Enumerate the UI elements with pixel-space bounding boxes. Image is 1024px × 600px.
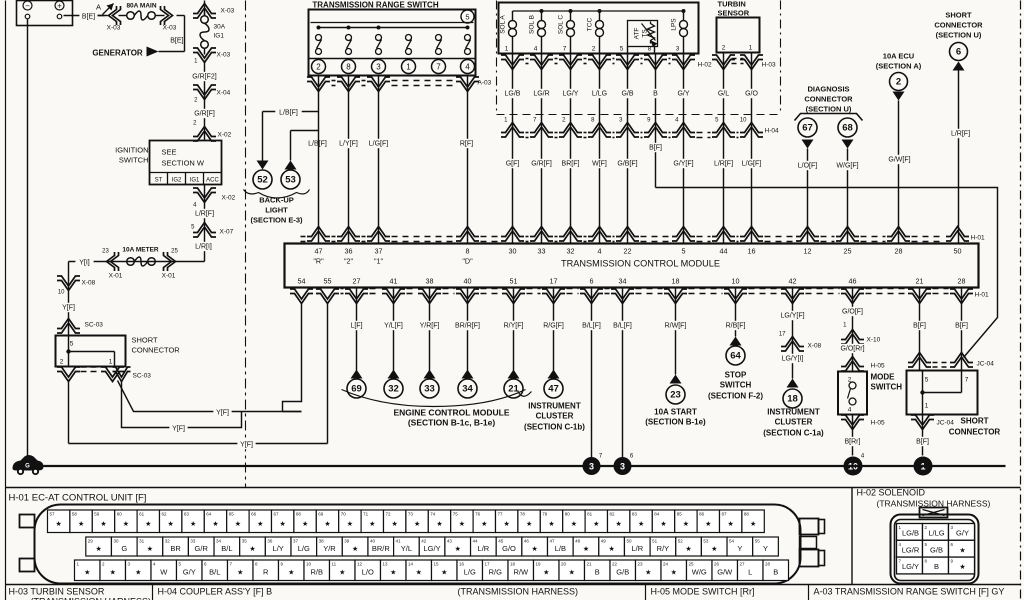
svg-text:Y: Y <box>737 544 742 553</box>
svg-text:LG/Y: LG/Y <box>563 91 579 98</box>
svg-text:GENERATOR: GENERATOR <box>92 49 143 58</box>
svg-text:H-04: H-04 <box>765 128 779 135</box>
svg-text:3: 3 <box>620 462 625 472</box>
svg-text:54: 54 <box>729 539 735 544</box>
svg-text:★: ★ <box>685 545 691 553</box>
svg-text:INSTRUMENT: INSTRUMENT <box>767 408 820 417</box>
svg-text:LIGHT: LIGHT <box>265 206 288 215</box>
svg-text:76: 76 <box>475 512 481 517</box>
svg-text:L/Y[F]: L/Y[F] <box>339 141 358 148</box>
svg-text:G: G <box>121 544 127 553</box>
svg-text:ACC: ACC <box>206 178 219 184</box>
svg-text:★: ★ <box>526 520 532 528</box>
svg-text:R/G: R/G <box>489 568 503 577</box>
svg-text:X-01: X-01 <box>162 273 176 280</box>
svg-text:IG1: IG1 <box>214 33 225 40</box>
svg-text:61: 61 <box>139 512 145 517</box>
svg-text:★: ★ <box>705 520 711 528</box>
svg-text:W: W <box>160 568 168 577</box>
svg-text:28: 28 <box>765 562 771 567</box>
svg-text:★: ★ <box>237 569 243 577</box>
svg-text:43: 43 <box>447 539 453 544</box>
svg-text:★: ★ <box>280 520 286 528</box>
svg-text:★: ★ <box>569 569 575 577</box>
svg-text:38: 38 <box>426 277 434 286</box>
svg-text:G[F]: G[F] <box>506 161 520 168</box>
svg-text:"2": "2" <box>344 257 354 266</box>
svg-text:25: 25 <box>844 247 852 256</box>
svg-text:18: 18 <box>510 562 516 567</box>
svg-text:INSTRUMENT: INSTRUMENT <box>528 402 581 411</box>
svg-text:★: ★ <box>543 569 549 577</box>
svg-text:44: 44 <box>473 539 479 544</box>
svg-text:★: ★ <box>416 569 422 577</box>
svg-text:33: 33 <box>538 247 546 256</box>
svg-text:X-10: X-10 <box>867 337 881 344</box>
svg-text:40: 40 <box>464 277 472 286</box>
svg-text:SHORT: SHORT <box>945 11 972 20</box>
svg-text:L/R: L/R <box>478 544 490 553</box>
svg-text:Y[F]: Y[F] <box>216 410 229 417</box>
svg-text:L/B: L/B <box>555 544 566 553</box>
svg-text:★: ★ <box>145 520 151 528</box>
svg-text:1: 1 <box>925 403 929 410</box>
svg-text:35: 35 <box>242 539 248 544</box>
svg-text:10: 10 <box>740 118 747 124</box>
svg-text:31: 31 <box>139 539 145 544</box>
svg-text:LG/Y[I]: LG/Y[I] <box>782 356 804 363</box>
svg-text:19: 19 <box>536 562 542 567</box>
svg-text:★: ★ <box>168 520 174 528</box>
svg-text:"R": "R" <box>313 257 324 266</box>
svg-text:★: ★ <box>638 520 644 528</box>
svg-text:G/R[F2]: G/R[F2] <box>192 74 217 81</box>
svg-text:Y[F]: Y[F] <box>240 442 253 449</box>
svg-text:78: 78 <box>520 512 526 517</box>
svg-text:82: 82 <box>610 512 616 517</box>
svg-text:★: ★ <box>369 520 375 528</box>
svg-text:3: 3 <box>589 462 594 472</box>
svg-text:17: 17 <box>779 332 786 338</box>
svg-text:W/G: W/G <box>692 568 707 577</box>
svg-text:B[Rr]: B[Rr] <box>845 439 861 446</box>
svg-text:H-05: H-05 <box>871 363 885 370</box>
svg-text:B[F]: B[F] <box>916 439 929 446</box>
svg-text:IG1: IG1 <box>190 178 200 184</box>
svg-text:(SECTION C-1b): (SECTION C-1b) <box>524 423 585 432</box>
svg-text:★: ★ <box>728 520 734 528</box>
svg-text:R/B[F]: R/B[F] <box>726 323 746 330</box>
svg-text:40: 40 <box>370 539 376 544</box>
svg-text:★: ★ <box>78 520 84 528</box>
svg-text:★: ★ <box>532 545 538 553</box>
svg-text:★: ★ <box>481 520 487 528</box>
svg-text:4: 4 <box>848 407 852 414</box>
svg-text:30A: 30A <box>214 24 226 31</box>
svg-text:10: 10 <box>58 290 65 296</box>
svg-text:★: ★ <box>671 569 677 577</box>
svg-text:(SECTION F-2): (SECTION F-2) <box>708 392 763 401</box>
svg-text:LPS: LPS <box>671 18 678 31</box>
svg-text:84: 84 <box>654 512 660 517</box>
svg-text:G/Y: G/Y <box>183 568 196 577</box>
svg-text:SC-03: SC-03 <box>85 322 104 329</box>
svg-text:H-03: H-03 <box>762 62 776 69</box>
svg-text:34: 34 <box>619 277 627 286</box>
svg-text:36: 36 <box>267 539 273 544</box>
svg-text:G/R[F]: G/R[F] <box>531 161 552 168</box>
svg-text:L/R[F]: L/R[F] <box>951 131 970 138</box>
svg-text:(SECTION U): (SECTION U) <box>936 31 982 40</box>
svg-text:(SECTION C-1a): (SECTION C-1a) <box>763 429 824 438</box>
svg-text:H-02 SOLENOID: H-02 SOLENOID <box>857 488 926 498</box>
svg-text:TURBIN: TURBIN <box>718 0 746 9</box>
svg-text:★: ★ <box>390 569 396 577</box>
svg-text:4: 4 <box>534 46 538 53</box>
svg-text:R/Y: R/Y <box>657 544 670 553</box>
svg-text:50: 50 <box>626 539 632 544</box>
svg-text:22: 22 <box>624 247 632 256</box>
svg-text:X-07: X-07 <box>220 229 234 236</box>
svg-text:A-03: A-03 <box>478 80 492 87</box>
svg-text:★: ★ <box>660 520 666 528</box>
svg-text:(SECTION B-1e): (SECTION B-1e) <box>645 418 706 427</box>
svg-text:L/LG: L/LG <box>928 529 944 538</box>
svg-text:44: 44 <box>720 247 728 256</box>
svg-text:R/G[F]: R/G[F] <box>543 323 564 330</box>
svg-text:L/LG: L/LG <box>592 91 607 98</box>
svg-text:L/G: L/G <box>464 568 476 577</box>
svg-text:★: ★ <box>593 520 599 528</box>
svg-text:"1": "1" <box>374 257 384 266</box>
svg-text:G/Y: G/Y <box>956 529 969 538</box>
svg-text:SOL B: SOL B <box>529 15 536 34</box>
svg-text:81: 81 <box>587 512 593 517</box>
svg-text:L/Y: L/Y <box>273 544 284 553</box>
svg-text:BR[F]: BR[F] <box>562 161 580 168</box>
svg-text:★: ★ <box>347 520 353 528</box>
svg-text:74: 74 <box>430 512 436 517</box>
svg-text:B/L[F]: B/L[F] <box>613 323 632 330</box>
svg-text:LG/B: LG/B <box>902 529 919 538</box>
svg-text:58: 58 <box>72 512 78 517</box>
svg-text:★: ★ <box>135 569 141 577</box>
svg-text:LG/Y: LG/Y <box>424 544 441 553</box>
svg-text:B/L: B/L <box>209 568 220 577</box>
svg-text:IG2: IG2 <box>172 178 182 184</box>
svg-text:62: 62 <box>162 512 168 517</box>
svg-text:5: 5 <box>70 341 74 348</box>
svg-text:75: 75 <box>453 512 459 517</box>
svg-text:R/Y[F]: R/Y[F] <box>504 323 524 330</box>
svg-text:7: 7 <box>436 63 441 72</box>
svg-text:33: 33 <box>190 539 196 544</box>
svg-text:X-03: X-03 <box>221 8 235 15</box>
svg-text:(SECTION A): (SECTION A) <box>876 62 922 71</box>
svg-text:★: ★ <box>616 520 622 528</box>
svg-text:51: 51 <box>510 277 518 286</box>
svg-text:1: 1 <box>505 46 509 53</box>
svg-text:−: − <box>25 2 30 11</box>
svg-text:SHORT: SHORT <box>961 417 989 426</box>
svg-text:8: 8 <box>466 247 470 256</box>
svg-text:SHORT: SHORT <box>132 336 159 345</box>
svg-text:SWITCH: SWITCH <box>720 381 752 390</box>
svg-text:66: 66 <box>251 512 257 517</box>
svg-text:21: 21 <box>587 562 593 567</box>
svg-text:H-04 COUPLER ASS'Y [F] B: H-04 COUPLER ASS'Y [F] B <box>158 587 273 597</box>
svg-text:4: 4 <box>465 63 470 72</box>
svg-text:★: ★ <box>100 520 106 528</box>
svg-text:48: 48 <box>575 539 581 544</box>
svg-text:24: 24 <box>663 562 669 567</box>
svg-text:47: 47 <box>548 384 559 395</box>
svg-text:69: 69 <box>318 512 324 517</box>
svg-text:B[F]: B[F] <box>649 145 662 152</box>
svg-text:(SECTION E-3): (SECTION E-3) <box>250 216 303 225</box>
svg-text:25: 25 <box>171 249 178 255</box>
svg-text:★: ★ <box>212 520 218 528</box>
svg-text:65: 65 <box>229 512 235 517</box>
svg-text:B: B <box>773 568 778 577</box>
svg-text:SWITCH: SWITCH <box>119 156 149 165</box>
svg-text:41: 41 <box>390 277 398 286</box>
svg-text:★: ★ <box>959 546 965 554</box>
svg-text:67: 67 <box>274 512 280 517</box>
svg-text:G/O[F]: G/O[F] <box>842 309 863 316</box>
svg-text:B/L[F]: B/L[F] <box>582 323 601 330</box>
svg-text:ST: ST <box>155 178 163 184</box>
svg-text:H-05 MODE SWITCH [Rr]: H-05 MODE SWITCH [Rr] <box>651 587 755 597</box>
svg-text:49: 49 <box>601 539 607 544</box>
svg-text:73: 73 <box>408 512 414 517</box>
svg-text:★: ★ <box>257 520 263 528</box>
svg-text:2: 2 <box>896 77 901 88</box>
svg-text:★: ★ <box>750 520 756 528</box>
svg-text:34: 34 <box>462 384 473 395</box>
svg-text:70: 70 <box>341 512 347 517</box>
svg-text:L: L <box>748 568 752 577</box>
svg-text:3: 3 <box>676 46 680 53</box>
svg-text:17: 17 <box>550 277 558 286</box>
svg-text:LG/R: LG/R <box>533 91 549 98</box>
svg-text:G/W[F]: G/W[F] <box>888 157 910 164</box>
svg-text:26: 26 <box>714 562 720 567</box>
svg-text:R/W[F]: R/W[F] <box>665 323 687 330</box>
svg-text:STOP: STOP <box>725 371 747 380</box>
svg-text:17: 17 <box>485 562 491 567</box>
svg-text:★: ★ <box>147 545 153 553</box>
svg-text:50: 50 <box>954 247 962 256</box>
svg-text:ENGINE CONTROL MODULE: ENGINE CONTROL MODULE <box>393 408 509 418</box>
svg-text:47: 47 <box>550 539 556 544</box>
svg-text:(TRANSMISSION HARNESS): (TRANSMISSION HARNESS) <box>31 597 152 600</box>
svg-text:6: 6 <box>956 47 961 58</box>
svg-text:G/O: G/O <box>502 544 516 553</box>
svg-text:(SECTION U): (SECTION U) <box>806 105 852 114</box>
svg-text:L/R: L/R <box>631 544 643 553</box>
svg-text:7: 7 <box>965 377 969 384</box>
svg-text:55: 55 <box>755 539 761 544</box>
svg-text:46: 46 <box>524 539 530 544</box>
svg-text:IGNITION: IGNITION <box>115 146 148 155</box>
svg-text:18: 18 <box>787 394 798 405</box>
svg-text:SECTION W: SECTION W <box>162 159 205 168</box>
svg-text:16: 16 <box>748 247 756 256</box>
svg-text:10A START: 10A START <box>654 408 697 417</box>
svg-text:30: 30 <box>113 539 119 544</box>
svg-text:L/O: L/O <box>362 568 374 577</box>
svg-text:H-02: H-02 <box>698 62 712 69</box>
svg-text:★: ★ <box>608 545 614 553</box>
svg-text:21: 21 <box>916 277 924 286</box>
svg-text:X-08: X-08 <box>82 280 96 287</box>
svg-text:TRANSMISSION CONTROL MODULE: TRANSMISSION CONTROL MODULE <box>561 259 720 269</box>
svg-text:CONNECTOR: CONNECTOR <box>132 346 181 355</box>
svg-text:39: 39 <box>344 539 350 544</box>
svg-text:68: 68 <box>296 512 302 517</box>
svg-text:G/B[F]: G/B[F] <box>617 161 637 168</box>
svg-text:32: 32 <box>388 384 399 395</box>
svg-text:★: ★ <box>123 520 129 528</box>
svg-text:G/O: G/O <box>745 91 758 98</box>
svg-text:1: 1 <box>749 45 753 52</box>
svg-text:X-03: X-03 <box>107 25 121 32</box>
svg-text:69: 69 <box>351 384 362 395</box>
svg-text:★: ★ <box>339 569 345 577</box>
svg-text:6: 6 <box>590 277 594 286</box>
svg-text:X-01: X-01 <box>109 273 123 280</box>
svg-text:80A MAIN: 80A MAIN <box>126 3 156 10</box>
svg-text:L/G[F]: L/G[F] <box>369 141 389 148</box>
svg-text:2: 2 <box>722 45 726 52</box>
svg-text:SENSOR: SENSOR <box>718 9 750 18</box>
svg-text:G/Y: G/Y <box>677 91 689 98</box>
svg-text:B: B <box>595 568 600 577</box>
svg-text:2: 2 <box>316 63 321 72</box>
svg-text:★: ★ <box>235 520 241 528</box>
svg-text:X-08: X-08 <box>808 343 822 350</box>
svg-text:7: 7 <box>563 46 567 53</box>
svg-text:23: 23 <box>102 249 109 255</box>
svg-text:X-04: X-04 <box>217 90 231 97</box>
svg-text:53: 53 <box>703 539 709 544</box>
svg-text:★: ★ <box>352 545 358 553</box>
svg-text:23: 23 <box>638 562 644 567</box>
svg-text:53: 53 <box>285 175 296 186</box>
svg-text:57: 57 <box>50 512 56 517</box>
svg-text:L/B[F]: L/B[F] <box>279 110 298 117</box>
svg-text:8: 8 <box>648 46 652 53</box>
svg-text:22: 22 <box>612 562 618 567</box>
svg-text:25: 25 <box>689 562 695 567</box>
svg-text:3: 3 <box>376 63 381 72</box>
svg-text:B/L: B/L <box>221 544 232 553</box>
svg-text:LG/R: LG/R <box>902 545 920 554</box>
svg-text:33: 33 <box>424 384 435 395</box>
svg-text:LG/Y[F]: LG/Y[F] <box>780 313 804 320</box>
svg-text:G/O[Rr]: G/O[Rr] <box>840 346 864 353</box>
svg-text:H-01 EC-AT CONTROL UNIT [F]: H-01 EC-AT CONTROL UNIT [F] <box>9 493 147 504</box>
svg-text:CLUSTER: CLUSTER <box>536 412 574 421</box>
svg-text:★: ★ <box>288 569 294 577</box>
svg-text:1: 1 <box>406 63 411 72</box>
svg-text:★: ★ <box>455 545 461 553</box>
svg-text:L[F]: L[F] <box>350 323 362 330</box>
svg-text:(SECTION B-1c, B-1e): (SECTION B-1c, B-1e) <box>408 418 496 428</box>
svg-text:L/R[F]: L/R[F] <box>195 211 214 218</box>
svg-text:10A METER: 10A METER <box>122 247 159 254</box>
svg-text:R: R <box>263 568 269 577</box>
svg-text:8: 8 <box>346 63 351 72</box>
svg-text:H-01: H-01 <box>975 292 989 299</box>
svg-text:+: + <box>57 2 62 11</box>
svg-text:37: 37 <box>375 247 383 256</box>
svg-text:27: 27 <box>353 277 361 286</box>
svg-text:★: ★ <box>436 520 442 528</box>
svg-text:29: 29 <box>88 539 94 544</box>
svg-text:36: 36 <box>345 247 353 256</box>
svg-text:55: 55 <box>324 277 332 286</box>
svg-text:Y: Y <box>763 544 768 553</box>
svg-text:20: 20 <box>561 562 567 567</box>
svg-text:★: ★ <box>392 520 398 528</box>
svg-text:64: 64 <box>730 351 741 362</box>
svg-text:46: 46 <box>849 277 857 286</box>
svg-text:G/W: G/W <box>717 568 733 577</box>
svg-text:5: 5 <box>620 46 624 53</box>
svg-text:52: 52 <box>257 175 268 186</box>
svg-text:Y/R[F]: Y/R[F] <box>420 323 440 330</box>
svg-text:DIAGNOSIS: DIAGNOSIS <box>807 85 849 94</box>
svg-text:B[E]: B[E] <box>82 14 95 21</box>
svg-text:2: 2 <box>592 46 596 53</box>
svg-text:★: ★ <box>683 520 689 528</box>
svg-text:B: B <box>653 91 658 98</box>
svg-text:86: 86 <box>699 512 705 517</box>
svg-text:X-03: X-03 <box>163 25 177 32</box>
svg-text:G: G <box>25 464 30 470</box>
svg-text:Y/L: Y/L <box>401 544 412 553</box>
svg-text:★: ★ <box>56 520 62 528</box>
svg-text:H-01: H-01 <box>971 235 985 242</box>
svg-text:L/O[F]: L/O[F] <box>798 163 818 170</box>
svg-text:12: 12 <box>804 247 812 256</box>
svg-text:TCC: TCC <box>587 18 594 32</box>
svg-text:83: 83 <box>632 512 638 517</box>
svg-text:BR/R: BR/R <box>372 544 391 553</box>
svg-text:45: 45 <box>498 539 504 544</box>
svg-text:68: 68 <box>842 123 853 134</box>
svg-text:42: 42 <box>789 277 797 286</box>
svg-text:16: 16 <box>459 562 465 567</box>
svg-text:32: 32 <box>567 247 575 256</box>
svg-text:★: ★ <box>504 520 510 528</box>
svg-text:"D": "D" <box>462 257 473 266</box>
svg-text:28: 28 <box>958 277 966 286</box>
svg-text:80: 80 <box>565 512 571 517</box>
svg-text:CONNECTOR: CONNECTOR <box>934 21 983 30</box>
svg-text:A-03 TRANSMISSION RANGE SWITCH: A-03 TRANSMISSION RANGE SWITCH [F] GY <box>814 587 1005 597</box>
svg-text:59: 59 <box>94 512 100 517</box>
svg-text:W/G[F]: W/G[F] <box>836 163 858 170</box>
svg-text:64: 64 <box>206 512 212 517</box>
svg-text:X-02: X-02 <box>222 195 236 202</box>
svg-text:79: 79 <box>542 512 548 517</box>
svg-text:13: 13 <box>383 562 389 567</box>
svg-text:28: 28 <box>895 247 903 256</box>
svg-text:32: 32 <box>165 539 171 544</box>
